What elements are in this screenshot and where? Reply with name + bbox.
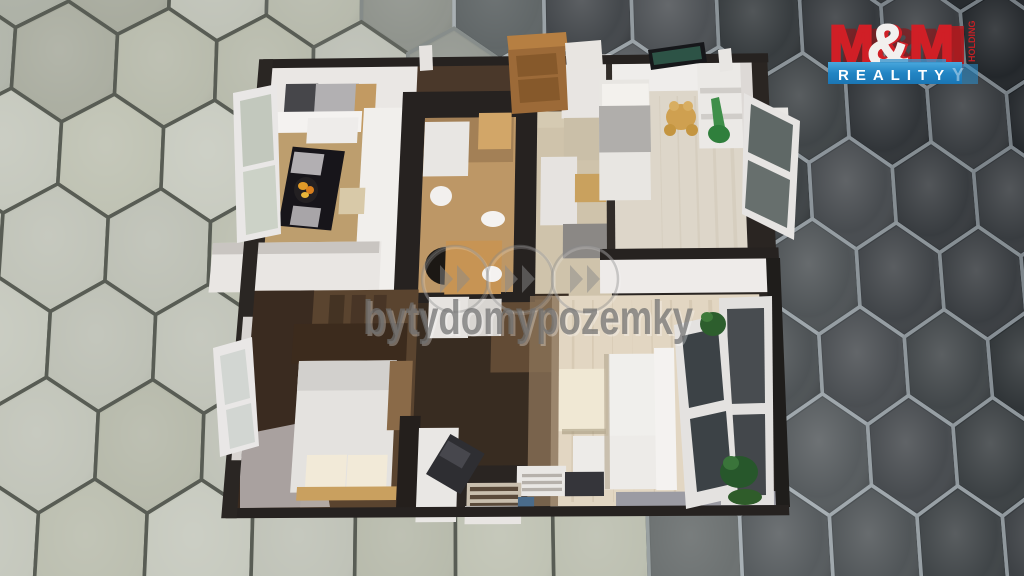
svg-text:Y: Y xyxy=(952,65,964,85)
svg-text:HOLDING: HOLDING xyxy=(967,21,977,63)
svg-text:REALITY: REALITY xyxy=(838,67,951,84)
svg-text:bytydomypozemky: bytydomypozemky xyxy=(363,292,693,345)
